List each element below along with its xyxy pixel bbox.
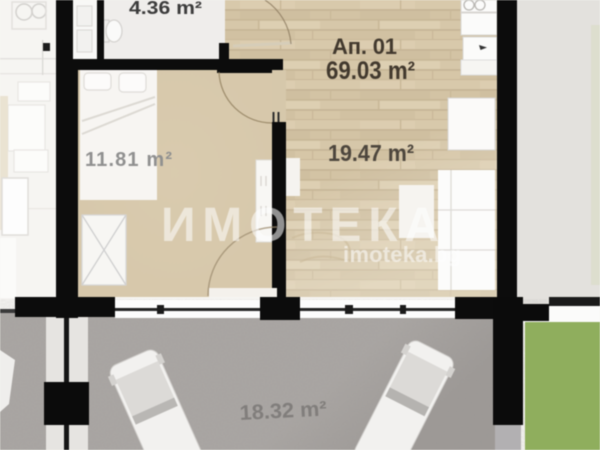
svg-text:4.36 m²: 4.36 m² [129, 0, 202, 18]
svg-text:69.03 m²: 69.03 m² [326, 57, 415, 85]
svg-text:imoteka.bg: imoteka.bg [343, 242, 461, 267]
svg-text:Ап. 01: Ап. 01 [332, 34, 397, 59]
svg-text:11.81 m²: 11.81 m² [85, 149, 172, 171]
svg-text:18.32 m²: 18.32 m² [239, 397, 327, 425]
svg-text:19.47 m²: 19.47 m² [328, 140, 414, 166]
